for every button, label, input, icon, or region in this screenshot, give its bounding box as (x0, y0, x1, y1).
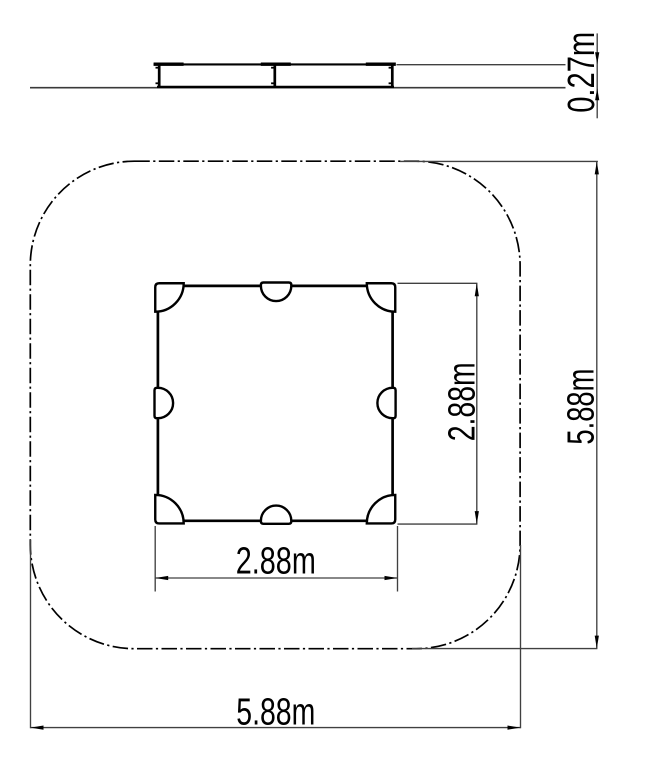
svg-text:5.88m: 5.88m (236, 692, 315, 734)
svg-text:2.88m: 2.88m (236, 540, 316, 582)
svg-text:0.27m: 0.27m (561, 32, 603, 113)
svg-text:2.88m: 2.88m (441, 362, 483, 441)
svg-text:5.88m: 5.88m (561, 369, 603, 445)
